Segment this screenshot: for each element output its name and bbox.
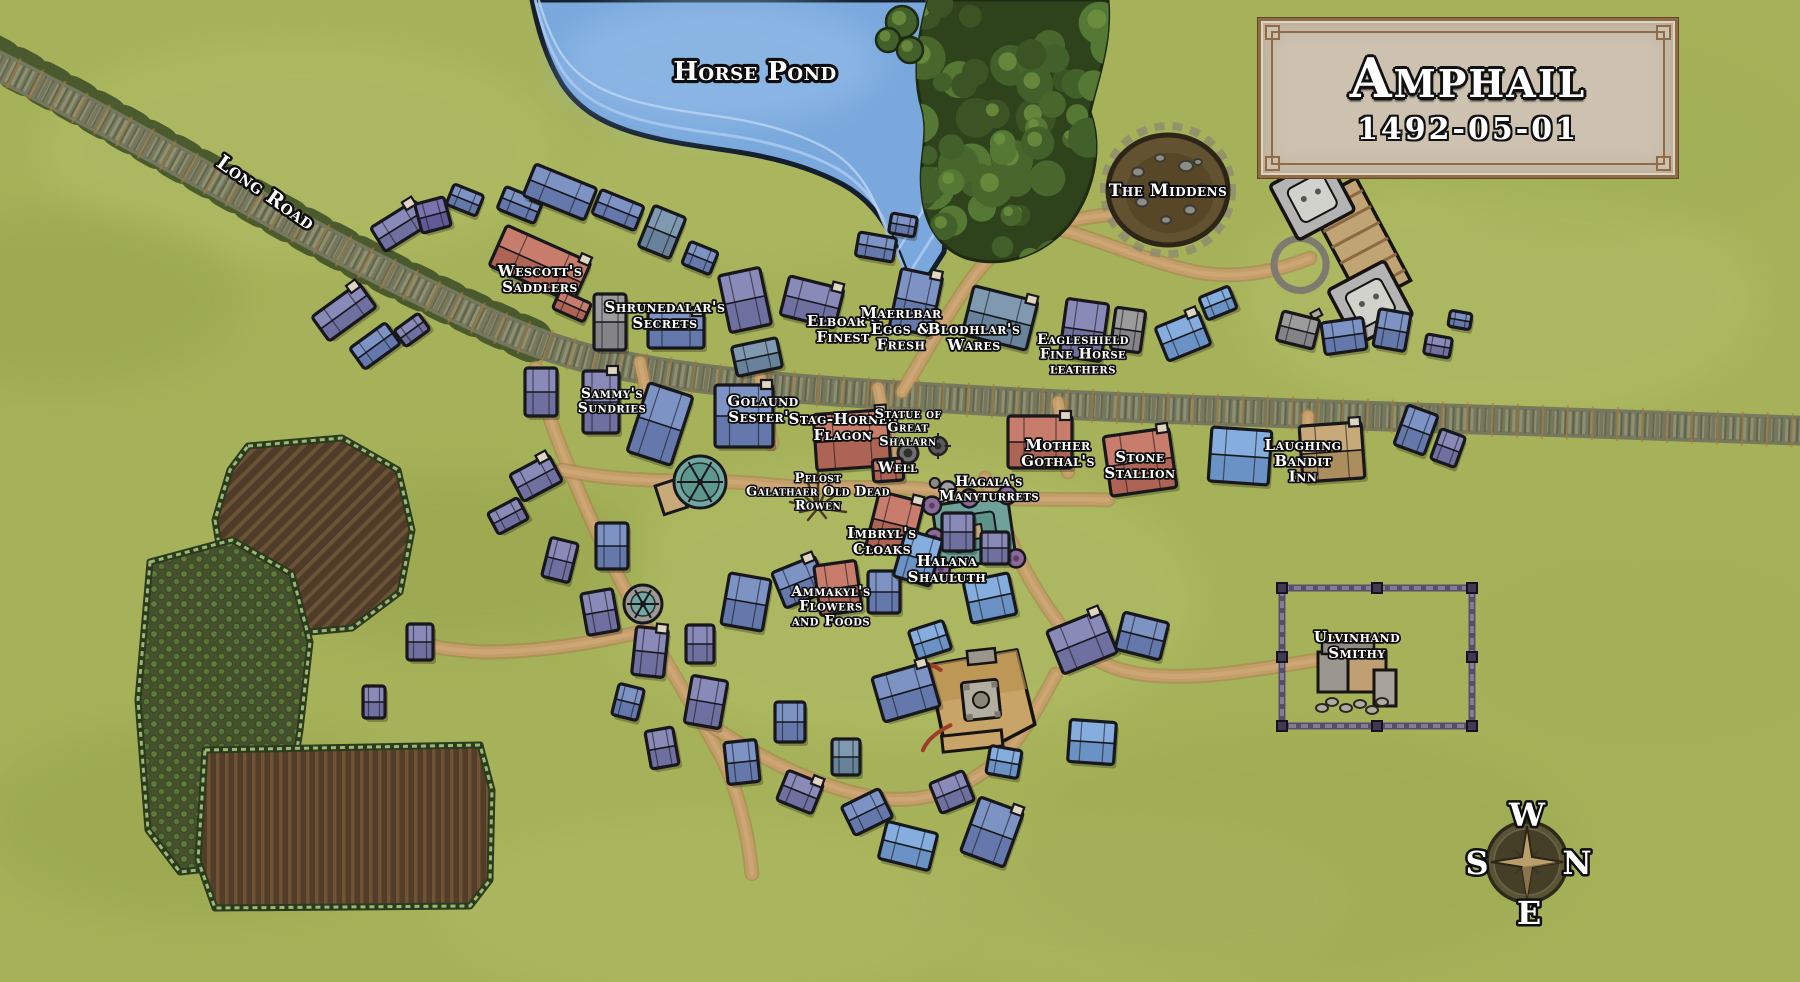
map-label-horse-pond: Horse Pond bbox=[673, 57, 836, 87]
building bbox=[832, 739, 863, 779]
building bbox=[1321, 317, 1371, 359]
map-label-imbryls-cloaks: Imbryl'sCloaks bbox=[847, 524, 916, 558]
map-date: 1492-05-01 bbox=[1357, 115, 1579, 145]
compass-letter-right: N bbox=[1562, 844, 1591, 882]
map-label-ammakyls-flowers: Ammakyl'sFlowersand Foods bbox=[790, 584, 870, 629]
compass-letter-left: S bbox=[1465, 844, 1488, 882]
compass-letter-bottom: E bbox=[1517, 894, 1541, 932]
building bbox=[407, 624, 436, 664]
plaque-inner-frame: Amphail 1492-05-01 bbox=[1271, 31, 1665, 165]
building bbox=[596, 523, 631, 573]
building bbox=[942, 513, 977, 555]
map-label-well: Well bbox=[877, 460, 917, 476]
building bbox=[363, 686, 388, 722]
round-tower bbox=[624, 585, 662, 623]
building bbox=[985, 745, 1025, 783]
building bbox=[686, 625, 717, 667]
compass-letter-top: W bbox=[1508, 796, 1546, 834]
map-label-halana-shauluth: HalanaShauluth bbox=[908, 552, 987, 586]
map-label-wescotts-saddlers: Wescott'sSaddlers bbox=[497, 262, 583, 296]
building bbox=[1372, 309, 1414, 356]
map-label-sammys-sundries: Sammy'sSundries bbox=[578, 386, 646, 417]
building bbox=[631, 621, 672, 681]
building bbox=[724, 739, 764, 788]
building bbox=[525, 368, 560, 420]
building bbox=[775, 702, 808, 746]
map-title-plaque: Amphail 1492-05-01 bbox=[1258, 18, 1678, 178]
village-map[interactable]: Horse PondLong RoadThe MiddensWescott'sS… bbox=[0, 0, 1800, 982]
map-label-mother-gothals: MotherGothal's bbox=[1021, 436, 1095, 470]
building bbox=[720, 573, 774, 636]
building bbox=[1067, 719, 1119, 768]
map-title: Amphail bbox=[1350, 51, 1586, 105]
building bbox=[981, 532, 1012, 568]
map-label-the-middens: The Middens bbox=[1109, 181, 1228, 201]
map-label-eagleshield-leathers: EagleshieldFine Horseleathers bbox=[1037, 332, 1129, 377]
